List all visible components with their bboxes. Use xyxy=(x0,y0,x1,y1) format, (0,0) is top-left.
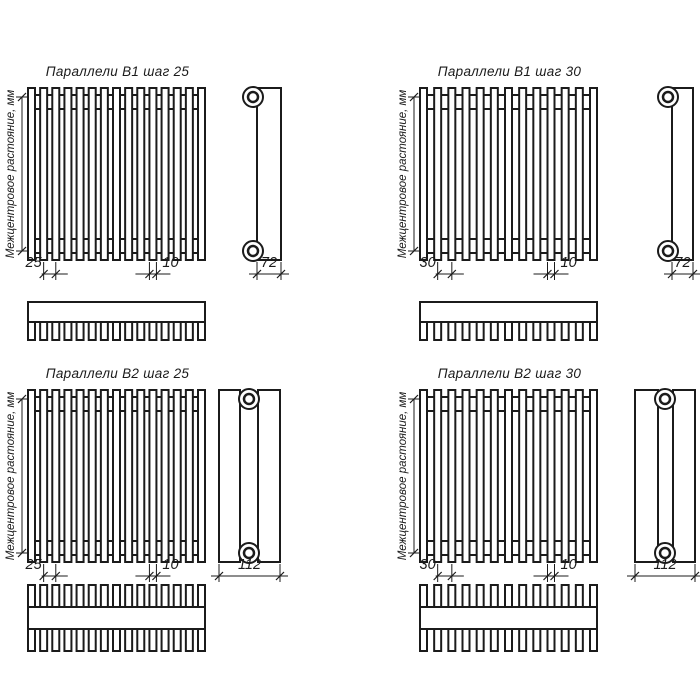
depth-dimension-value: 112 xyxy=(653,557,676,573)
depth-dimension-value: 72 xyxy=(674,255,690,271)
intercenter-distance-label: Межцентровое растояние, мм xyxy=(5,90,17,259)
drawing-title: Параллели В2 шаг 25 xyxy=(46,366,189,381)
drawing-title: Параллели В1 шаг 25 xyxy=(46,64,189,79)
intercenter-distance-label: Межцентровое растояние, мм xyxy=(397,392,409,561)
drawing-title: Параллели В1 шаг 30 xyxy=(438,64,581,79)
pitch-dimension-value: 30 xyxy=(420,255,436,271)
tube-width-dimension-value: 10 xyxy=(561,255,577,271)
drawing-title: Параллели В2 шаг 30 xyxy=(438,366,581,381)
tube-width-dimension-value: 10 xyxy=(162,255,178,271)
pitch-dimension-value: 30 xyxy=(420,557,436,573)
technical-drawing-sheet: Параллели В1 шаг 25 Межцентровое растоян… xyxy=(0,0,700,700)
depth-dimension-value: 112 xyxy=(238,557,261,573)
panel-parallels-b1-step25: Параллели В1 шаг 25 Межцентровое растоян… xyxy=(0,0,700,700)
tube-width-dimension-value: 10 xyxy=(561,557,577,573)
tube-width-dimension-value: 10 xyxy=(162,557,178,573)
radiator-drawing-b1-step25 xyxy=(0,0,700,700)
pitch-dimension-value: 25 xyxy=(26,255,42,271)
radiator-drawing-b2-step25 xyxy=(0,0,700,700)
panel-parallels-b2-step30: Параллели В2 шаг 30 Межцентровое растоян… xyxy=(0,0,700,700)
pitch-dimension-value: 25 xyxy=(26,557,42,573)
panel-parallels-b1-step30: Параллели В1 шаг 30 Межцентровое растоян… xyxy=(0,0,700,700)
intercenter-distance-label: Межцентровое растояние, мм xyxy=(397,90,409,259)
radiator-drawing-b1-step30 xyxy=(0,0,700,700)
panel-parallels-b2-step25: Параллели В2 шаг 25 Межцентровое растоян… xyxy=(0,0,700,700)
radiator-drawing-b2-step30 xyxy=(0,0,700,700)
intercenter-distance-label: Межцентровое растояние, мм xyxy=(5,392,17,561)
depth-dimension-value: 72 xyxy=(261,255,277,271)
